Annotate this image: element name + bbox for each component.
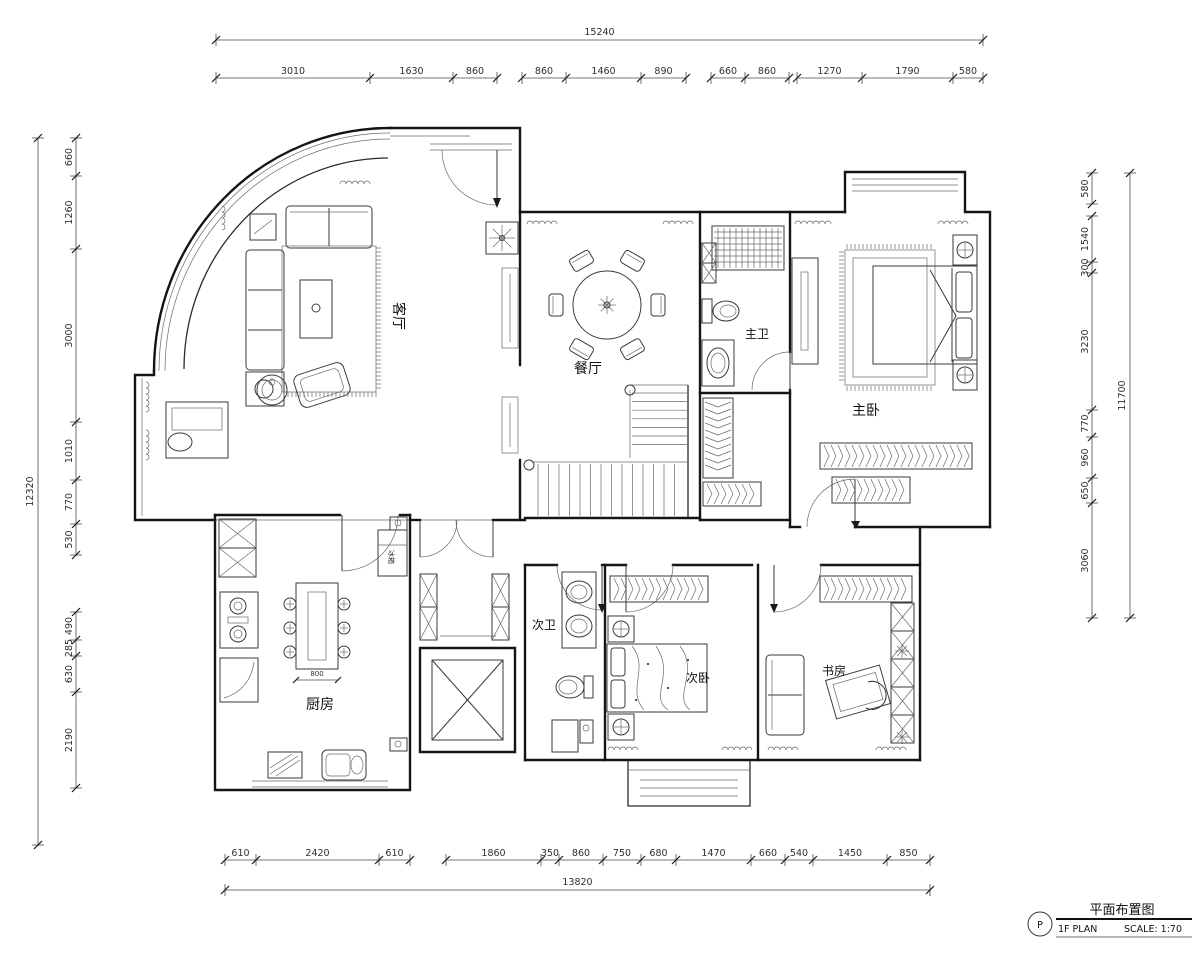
entry-floor-emblem	[486, 222, 518, 254]
dim-label: 530	[64, 530, 75, 548]
dim-label: 860	[535, 66, 553, 77]
floor-plan-drawing: 3010163086086014608906608601270179058015…	[0, 0, 1200, 960]
master-bath-fixtures	[702, 226, 784, 386]
room-label-second-bath: 次卫	[532, 618, 556, 632]
dim-label: 3060	[1080, 548, 1091, 572]
toilet-tank	[702, 299, 712, 323]
sheet-title: 平面布置图	[1089, 903, 1154, 918]
island	[296, 583, 338, 669]
dish-rack	[268, 752, 302, 778]
stair-steps	[538, 393, 688, 516]
dim-label: 2190	[64, 728, 75, 752]
dim-label: 1450	[838, 848, 862, 859]
dim-overall-label: 12320	[25, 476, 36, 506]
plan-badge-letter: P	[1037, 920, 1043, 931]
wall-niche	[792, 258, 818, 364]
dim-label: 490	[64, 617, 75, 635]
dim-label: 1470	[701, 848, 725, 859]
stool	[168, 433, 192, 451]
toilet	[713, 301, 739, 321]
dim-label: 850	[899, 848, 917, 859]
dim-label: 750	[613, 848, 631, 859]
title-block: P 平面布置图 1F PLAN SCALE: 1:70	[1028, 903, 1192, 937]
dim-label: 650	[1080, 481, 1091, 499]
doors	[342, 150, 860, 613]
dim-label: 3230	[1080, 329, 1091, 353]
dim-label: 1630	[399, 66, 423, 77]
dim-label: 630	[64, 665, 75, 683]
dim-label: 350	[541, 848, 559, 859]
room-label-kitchen: 厨房	[306, 697, 334, 713]
room-label-study: 书房	[822, 663, 846, 678]
pillow	[611, 680, 625, 708]
toilet-tank	[584, 676, 593, 698]
dim-overall-label: 15240	[584, 27, 614, 38]
room-label-master-bedroom: 主卧	[852, 403, 880, 419]
dim-label: 1460	[591, 66, 615, 77]
fridge-label: 冰箱	[387, 550, 396, 564]
entry-arrow	[493, 198, 501, 208]
cabinet-hatch	[219, 243, 914, 743]
dim-label: 1860	[481, 848, 505, 859]
room-label-living: 客厅	[390, 302, 407, 330]
plan-scale: SCALE: 1:70	[1124, 924, 1182, 935]
island-dimension: 800	[293, 670, 341, 683]
pillow	[611, 648, 625, 676]
dimension-chains: 3010163086086014608906608601270179058015…	[25, 27, 1136, 896]
sink	[707, 348, 729, 378]
dim-label: 860	[466, 66, 484, 77]
dim-label: 3010	[281, 66, 305, 77]
dim-label: 2420	[305, 848, 329, 859]
dim-label: 860	[758, 66, 776, 77]
island-dim-label: 800	[310, 670, 323, 678]
dim-label: 540	[790, 848, 808, 859]
dim-label: 1010	[64, 439, 75, 463]
dining-chair	[619, 249, 645, 272]
living-room-furniture	[166, 206, 376, 458]
dim-label: 660	[719, 66, 737, 77]
kitchen-fixtures: 冰箱 800	[220, 517, 407, 780]
dim-label: 610	[231, 848, 249, 859]
dining-furniture	[549, 249, 665, 360]
dining-chair	[568, 338, 594, 361]
dim-label: 890	[654, 66, 672, 77]
pillow	[956, 272, 972, 312]
dim-overall-label: 13820	[562, 877, 592, 888]
toilet	[556, 676, 584, 698]
round-side-table	[257, 375, 287, 405]
dim-label: 770	[64, 493, 75, 511]
sofa-2seat	[246, 250, 284, 370]
dim-label: 285	[64, 639, 75, 657]
elevator	[432, 636, 503, 740]
dim-overall-label: 11700	[1117, 380, 1128, 410]
dim-label: 680	[649, 848, 667, 859]
dining-chair	[549, 294, 563, 316]
dim-label: 1540	[1080, 227, 1091, 251]
room-label-dining: 餐厅	[574, 361, 602, 377]
bed	[873, 266, 977, 364]
dim-label: 660	[759, 848, 777, 859]
sink	[566, 615, 592, 637]
walls	[135, 128, 990, 806]
floor-plan-sheet: 3010163086086014608906608601270179058015…	[0, 0, 1200, 960]
dining-chair	[651, 294, 665, 316]
plan-name: 1F PLAN	[1058, 924, 1097, 935]
coffee-table	[300, 280, 332, 338]
dim-label: 960	[1080, 448, 1091, 466]
dim-label: 580	[959, 66, 977, 77]
dim-label: 580	[1080, 179, 1091, 197]
dim-label: 1790	[895, 66, 919, 77]
pillow	[956, 318, 972, 358]
dim-label: 1270	[817, 66, 841, 77]
study-furniture	[766, 644, 909, 744]
dim-label: 770	[1080, 414, 1091, 432]
dining-chair	[619, 338, 645, 361]
sink	[566, 581, 592, 603]
master-bedroom-furniture	[792, 235, 977, 391]
room-label-master-bath: 主卫	[745, 327, 769, 341]
cooktop-counter	[220, 592, 258, 648]
dim-label: 1260	[64, 200, 75, 224]
room-label-second-bedroom: 次卧	[686, 671, 710, 685]
dining-chair	[568, 249, 594, 272]
rug	[845, 250, 935, 385]
dim-label: 660	[64, 148, 75, 166]
corner-cabinet	[220, 658, 258, 702]
washer	[552, 720, 578, 752]
dim-label: 3000	[64, 323, 75, 347]
dim-label: 610	[385, 848, 403, 859]
dim-label: 300	[1080, 258, 1091, 276]
second-bath-fixtures	[552, 572, 596, 752]
dim-label: 860	[572, 848, 590, 859]
